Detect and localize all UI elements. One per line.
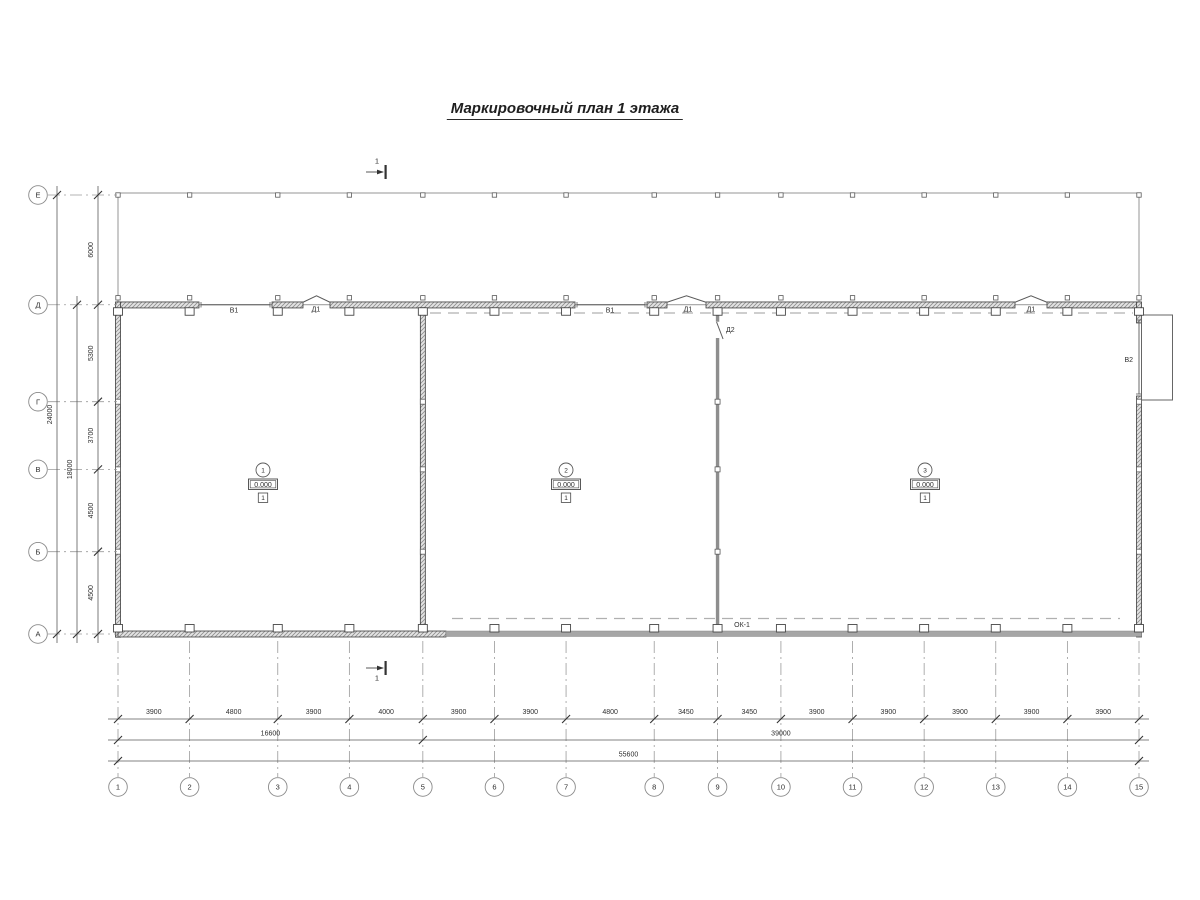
column-marker-roof <box>779 193 783 197</box>
column-marker-roof <box>421 296 425 300</box>
room-number-label: 3 <box>923 468 927 475</box>
column-marker-roof <box>922 296 926 300</box>
axis-label-column: 6 <box>492 783 496 792</box>
column-marker <box>776 625 785 633</box>
column-marker <box>920 625 929 633</box>
opening-label-ok1: ОК-1 <box>734 622 750 629</box>
column-marker <box>1063 625 1072 633</box>
column-marker-roof <box>994 296 998 300</box>
column-marker <box>490 308 499 316</box>
dim-label: 3900 <box>1095 709 1111 716</box>
column-marker-roof <box>347 193 351 197</box>
dim-label: 4500 <box>88 503 95 519</box>
dim-label: 24000 <box>47 405 54 425</box>
column-marker-small <box>715 467 720 472</box>
canopy-outline <box>118 193 1139 305</box>
column-marker-roof <box>116 296 120 300</box>
column-marker-roof <box>652 296 656 300</box>
column-marker-small <box>715 399 720 404</box>
dim-label: 3900 <box>881 709 897 716</box>
column-marker-small <box>420 467 425 472</box>
column-marker-roof <box>652 193 656 197</box>
axis-label-column: 8 <box>652 783 656 792</box>
opening-label-d1: Д1 <box>1027 307 1036 314</box>
column-marker <box>418 625 427 633</box>
column-marker <box>848 308 857 316</box>
column-marker <box>418 308 427 316</box>
column-marker-small <box>1137 399 1142 404</box>
exterior-wall-north <box>647 302 667 308</box>
column-marker-roof <box>922 193 926 197</box>
exterior-wall-east <box>1137 396 1142 637</box>
axis-label-column: 10 <box>777 783 785 792</box>
dim-label: 5300 <box>88 345 95 361</box>
section-cut-arrow <box>377 170 384 175</box>
dim-label: 39000 <box>771 731 791 738</box>
column-marker <box>273 625 282 633</box>
column-marker <box>713 308 722 316</box>
section-cut-bar <box>385 661 387 675</box>
dim-label: 4800 <box>226 709 242 716</box>
dim-label: 3900 <box>809 709 825 716</box>
column-marker-roof <box>1137 296 1141 300</box>
dim-label: 4000 <box>378 709 394 716</box>
axis-label-row: Д <box>35 300 40 309</box>
column-marker-roof <box>421 193 425 197</box>
axis-label-column: 11 <box>849 783 857 792</box>
column-marker-roof <box>779 296 783 300</box>
column-marker-roof <box>1137 193 1141 197</box>
dim-label: 4500 <box>88 585 95 601</box>
dim-label: 55600 <box>619 752 639 759</box>
section-cut-label: 1 <box>375 157 379 166</box>
dim-label: 3450 <box>678 709 694 716</box>
opening-label-v1: В1 <box>230 308 239 315</box>
axis-label-row: Г <box>36 397 40 406</box>
column-marker-roof <box>850 193 854 197</box>
column-marker-roof <box>1065 193 1069 197</box>
axis-label-row: В <box>35 465 40 474</box>
plan-layer: 10.000120.000130.0001В1Д1В1Д1Д2Д1В2ОК-13… <box>29 157 1173 797</box>
dim-label: 3900 <box>952 709 968 716</box>
exterior-wall-north <box>706 302 1015 308</box>
drawing-sheet: Маркировочный план 1 этажа 10.000120.000… <box>0 0 1200 900</box>
column-marker <box>650 308 659 316</box>
floor-type-label: 1 <box>261 495 265 502</box>
column-marker-roof <box>492 296 496 300</box>
column-marker-roof <box>276 193 280 197</box>
axis-label-column: 4 <box>347 783 351 792</box>
column-marker <box>776 308 785 316</box>
axis-label-column: 5 <box>421 783 425 792</box>
interior-wall-axis9 <box>716 338 719 631</box>
column-marker <box>185 308 194 316</box>
axis-label-column: 7 <box>564 783 568 792</box>
column-marker-roof <box>492 193 496 197</box>
column-marker <box>490 625 499 633</box>
door-swing-d1 <box>303 296 330 303</box>
column-marker <box>273 308 282 316</box>
column-marker-small <box>1137 467 1142 472</box>
axis-label-row: А <box>35 630 40 639</box>
column-marker-roof <box>850 296 854 300</box>
elevation-label: 0.000 <box>557 482 575 489</box>
dim-label: 3900 <box>306 709 322 716</box>
column-marker <box>1135 308 1144 316</box>
dim-label: 3900 <box>146 709 162 716</box>
column-marker-roof <box>347 296 351 300</box>
dim-label: 4800 <box>602 709 618 716</box>
section-cut-arrow <box>377 666 384 671</box>
axis-label-column: 12 <box>920 783 928 792</box>
axis-label-column: 1 <box>116 783 120 792</box>
room-number-label: 1 <box>261 468 265 475</box>
column-marker-roof <box>187 193 191 197</box>
column-marker <box>991 308 1000 316</box>
column-marker-roof <box>1065 296 1069 300</box>
column-marker-roof <box>276 296 280 300</box>
column-marker <box>1135 625 1144 633</box>
column-marker <box>185 625 194 633</box>
floor-type-label: 1 <box>564 495 568 502</box>
axis-label-row: Е <box>35 191 40 200</box>
axis-label-column: 2 <box>188 783 192 792</box>
column-marker <box>848 625 857 633</box>
dim-label: 3700 <box>88 428 95 444</box>
axis-label-column: 13 <box>992 783 1000 792</box>
dim-label: 18000 <box>67 460 74 480</box>
column-marker <box>114 308 123 316</box>
column-marker-small <box>1137 549 1142 554</box>
room-number-label: 2 <box>564 468 568 475</box>
opening-label-d1: Д1 <box>684 307 693 314</box>
floor-type-label: 1 <box>923 495 927 502</box>
exterior-wall-north <box>330 302 575 308</box>
column-marker-roof <box>187 296 191 300</box>
door-swing-d1 <box>1015 296 1047 303</box>
column-marker <box>991 625 1000 633</box>
exterior-wall-north <box>118 302 199 308</box>
floor-plan-svg: 10.000120.000130.0001В1Д1В1Д1Д2Д1В2ОК-13… <box>0 0 1200 900</box>
door-leaf-d2 <box>717 322 724 339</box>
axis-label-column: 14 <box>1063 783 1071 792</box>
axis-label-row: Б <box>36 547 41 556</box>
opening-label-d2: Д2 <box>726 327 735 334</box>
axis-label-column: 15 <box>1135 783 1143 792</box>
exterior-wall-north <box>1047 302 1141 308</box>
opening-label-d1: Д1 <box>312 307 321 314</box>
axis-label-column: 3 <box>276 783 280 792</box>
opening-label-v1: В1 <box>606 308 615 315</box>
column-marker <box>562 625 571 633</box>
dim-label: 3900 <box>451 709 467 716</box>
column-marker-small <box>420 399 425 404</box>
exterior-wall-north <box>272 302 303 308</box>
section-cut-label: 1 <box>375 674 379 683</box>
column-marker <box>562 308 571 316</box>
window-strip-ok1 <box>446 631 1142 637</box>
column-marker-roof <box>715 193 719 197</box>
column-marker <box>713 625 722 633</box>
column-marker-small <box>715 549 720 554</box>
column-marker <box>345 625 354 633</box>
column-marker-roof <box>994 193 998 197</box>
axis-label-column: 9 <box>715 783 719 792</box>
elevation-label: 0.000 <box>916 482 934 489</box>
dim-label: 3450 <box>741 709 757 716</box>
column-marker-small <box>420 549 425 554</box>
column-marker <box>650 625 659 633</box>
column-marker-roof <box>564 296 568 300</box>
column-marker-roof <box>715 296 719 300</box>
column-marker <box>920 308 929 316</box>
section-cut-bar <box>385 165 387 179</box>
opening-label-v2: В2 <box>1124 357 1133 364</box>
column-marker-roof <box>564 193 568 197</box>
column-marker <box>1063 308 1072 316</box>
door-swing-d1 <box>667 296 706 303</box>
dim-label: 3900 <box>1024 709 1040 716</box>
dim-label: 6000 <box>88 242 95 258</box>
elevation-label: 0.000 <box>254 482 272 489</box>
dim-label: 16600 <box>261 731 281 738</box>
column-marker <box>345 308 354 316</box>
loading-ramp <box>1142 315 1173 400</box>
dim-label: 3900 <box>522 709 538 716</box>
column-marker <box>114 625 123 633</box>
